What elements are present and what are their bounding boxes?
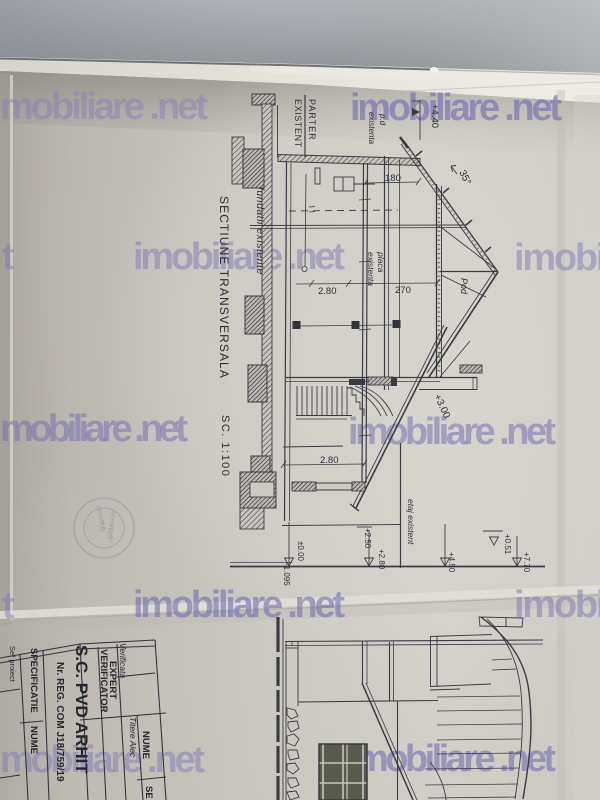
svg-text:SC. 1:100: SC. 1:100 — [219, 415, 231, 477]
svg-text:+4.40: +4.40 — [429, 104, 440, 128]
svg-text:imobiliare .net: imobiliare .net — [348, 738, 556, 780]
svg-text:Sef proiect: Sef proiect — [8, 646, 17, 683]
svg-text:NUME: NUME — [28, 726, 39, 754]
svg-text:+4.50: +4.50 — [447, 552, 456, 573]
svg-text:p.d: p.d — [378, 113, 387, 126]
svg-text:t: t — [2, 236, 15, 278]
svg-text:mobiliare .net: mobiliare .net — [0, 86, 208, 128]
svg-text:imobiliare .net: imobiliare .net — [133, 236, 345, 278]
svg-text:imobiliare .net: imobiliare .net — [133, 584, 345, 626]
svg-text:NUME: NUME — [140, 731, 151, 759]
svg-text:t: t — [2, 585, 15, 627]
svg-text:SE: SE — [143, 786, 154, 799]
svg-text:SECTIUNE TRANSVERSALA: SECTIUNE TRANSVERSALA — [217, 196, 231, 379]
svg-text:PARTER: PARTER — [307, 99, 317, 141]
svg-text:+0.51: +0.51 — [503, 534, 512, 555]
svg-text:Verificata: Verificata — [118, 643, 128, 678]
svg-text:2.80: 2.80 — [318, 286, 337, 297]
svg-text:+2.50: +2.50 — [363, 528, 372, 549]
svg-text:imobiliare .net: imobiliare .net — [348, 411, 556, 453]
svg-text:existenta: existenta — [367, 112, 376, 145]
svg-text:+2.80: +2.80 — [377, 549, 386, 570]
svg-text:mobiliare .net: mobiliare .net — [0, 408, 188, 450]
svg-text:2.80: 2.80 — [320, 455, 339, 466]
svg-text:±0.00: ±0.00 — [296, 541, 305, 562]
svg-text:EXISTENT: EXISTENT — [293, 99, 303, 148]
svg-text:+7.70: +7.70 — [522, 552, 531, 573]
svg-text:270: 270 — [395, 285, 411, 296]
svg-text:-1.095: -1.095 — [282, 563, 291, 586]
svg-text:imobilia: imobilia — [514, 237, 600, 279]
svg-text:Pod: Pod — [459, 278, 469, 295]
svg-text:EXPERT: EXPERT — [107, 661, 118, 699]
svg-text:placa: placa — [376, 251, 386, 273]
svg-text:S.C. PVD ARHIT: S.C. PVD ARHIT — [72, 645, 91, 774]
svg-text:imobilia: imobilia — [514, 584, 600, 626]
svg-text:SPECIFICATIE: SPECIFICATIE — [28, 648, 39, 713]
svg-text:Nr. REG. COM J18/759/19: Nr. REG. COM J18/759/19 — [54, 662, 65, 782]
svg-text:etaj existent: etaj existent — [406, 499, 416, 545]
svg-text:existenta: existenta — [366, 252, 376, 286]
svg-text:T.S.: T.S. — [97, 521, 105, 534]
svg-text:180: 180 — [385, 173, 401, 184]
svg-text:Titere Alec: Titere Alec — [128, 717, 138, 758]
svg-text:fundatii existente: fundatii existente — [254, 187, 266, 275]
